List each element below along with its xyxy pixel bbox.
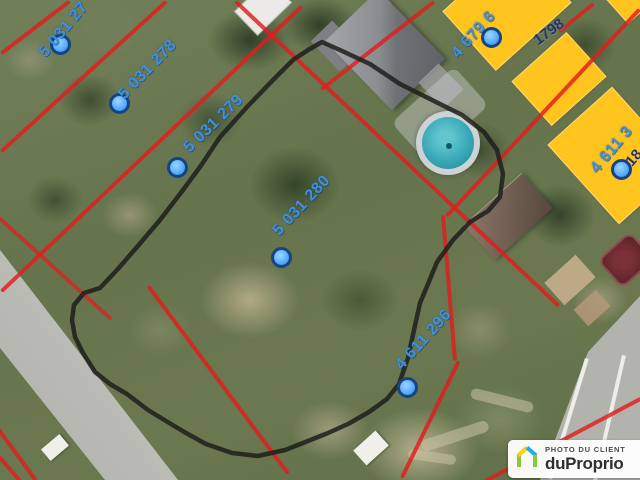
pool-drain <box>446 143 452 149</box>
watermark-caption: PHOTO DU CLIENT <box>545 446 626 454</box>
watermark-text: PHOTO DU CLIENT duProprio <box>545 446 626 472</box>
lot-marker <box>271 247 292 268</box>
pool-water <box>422 117 474 169</box>
duproprio-house-icon <box>514 444 540 475</box>
duproprio-watermark: PHOTO DU CLIENT duProprio <box>508 440 640 478</box>
lot-marker <box>167 157 188 178</box>
swimming-pool <box>416 111 480 175</box>
watermark-brand: duProprio <box>545 455 626 472</box>
aerial-photo: 5 031 27 5 031 278 5 031 279 5 031 280 4… <box>0 0 640 480</box>
lot-marker <box>397 377 418 398</box>
